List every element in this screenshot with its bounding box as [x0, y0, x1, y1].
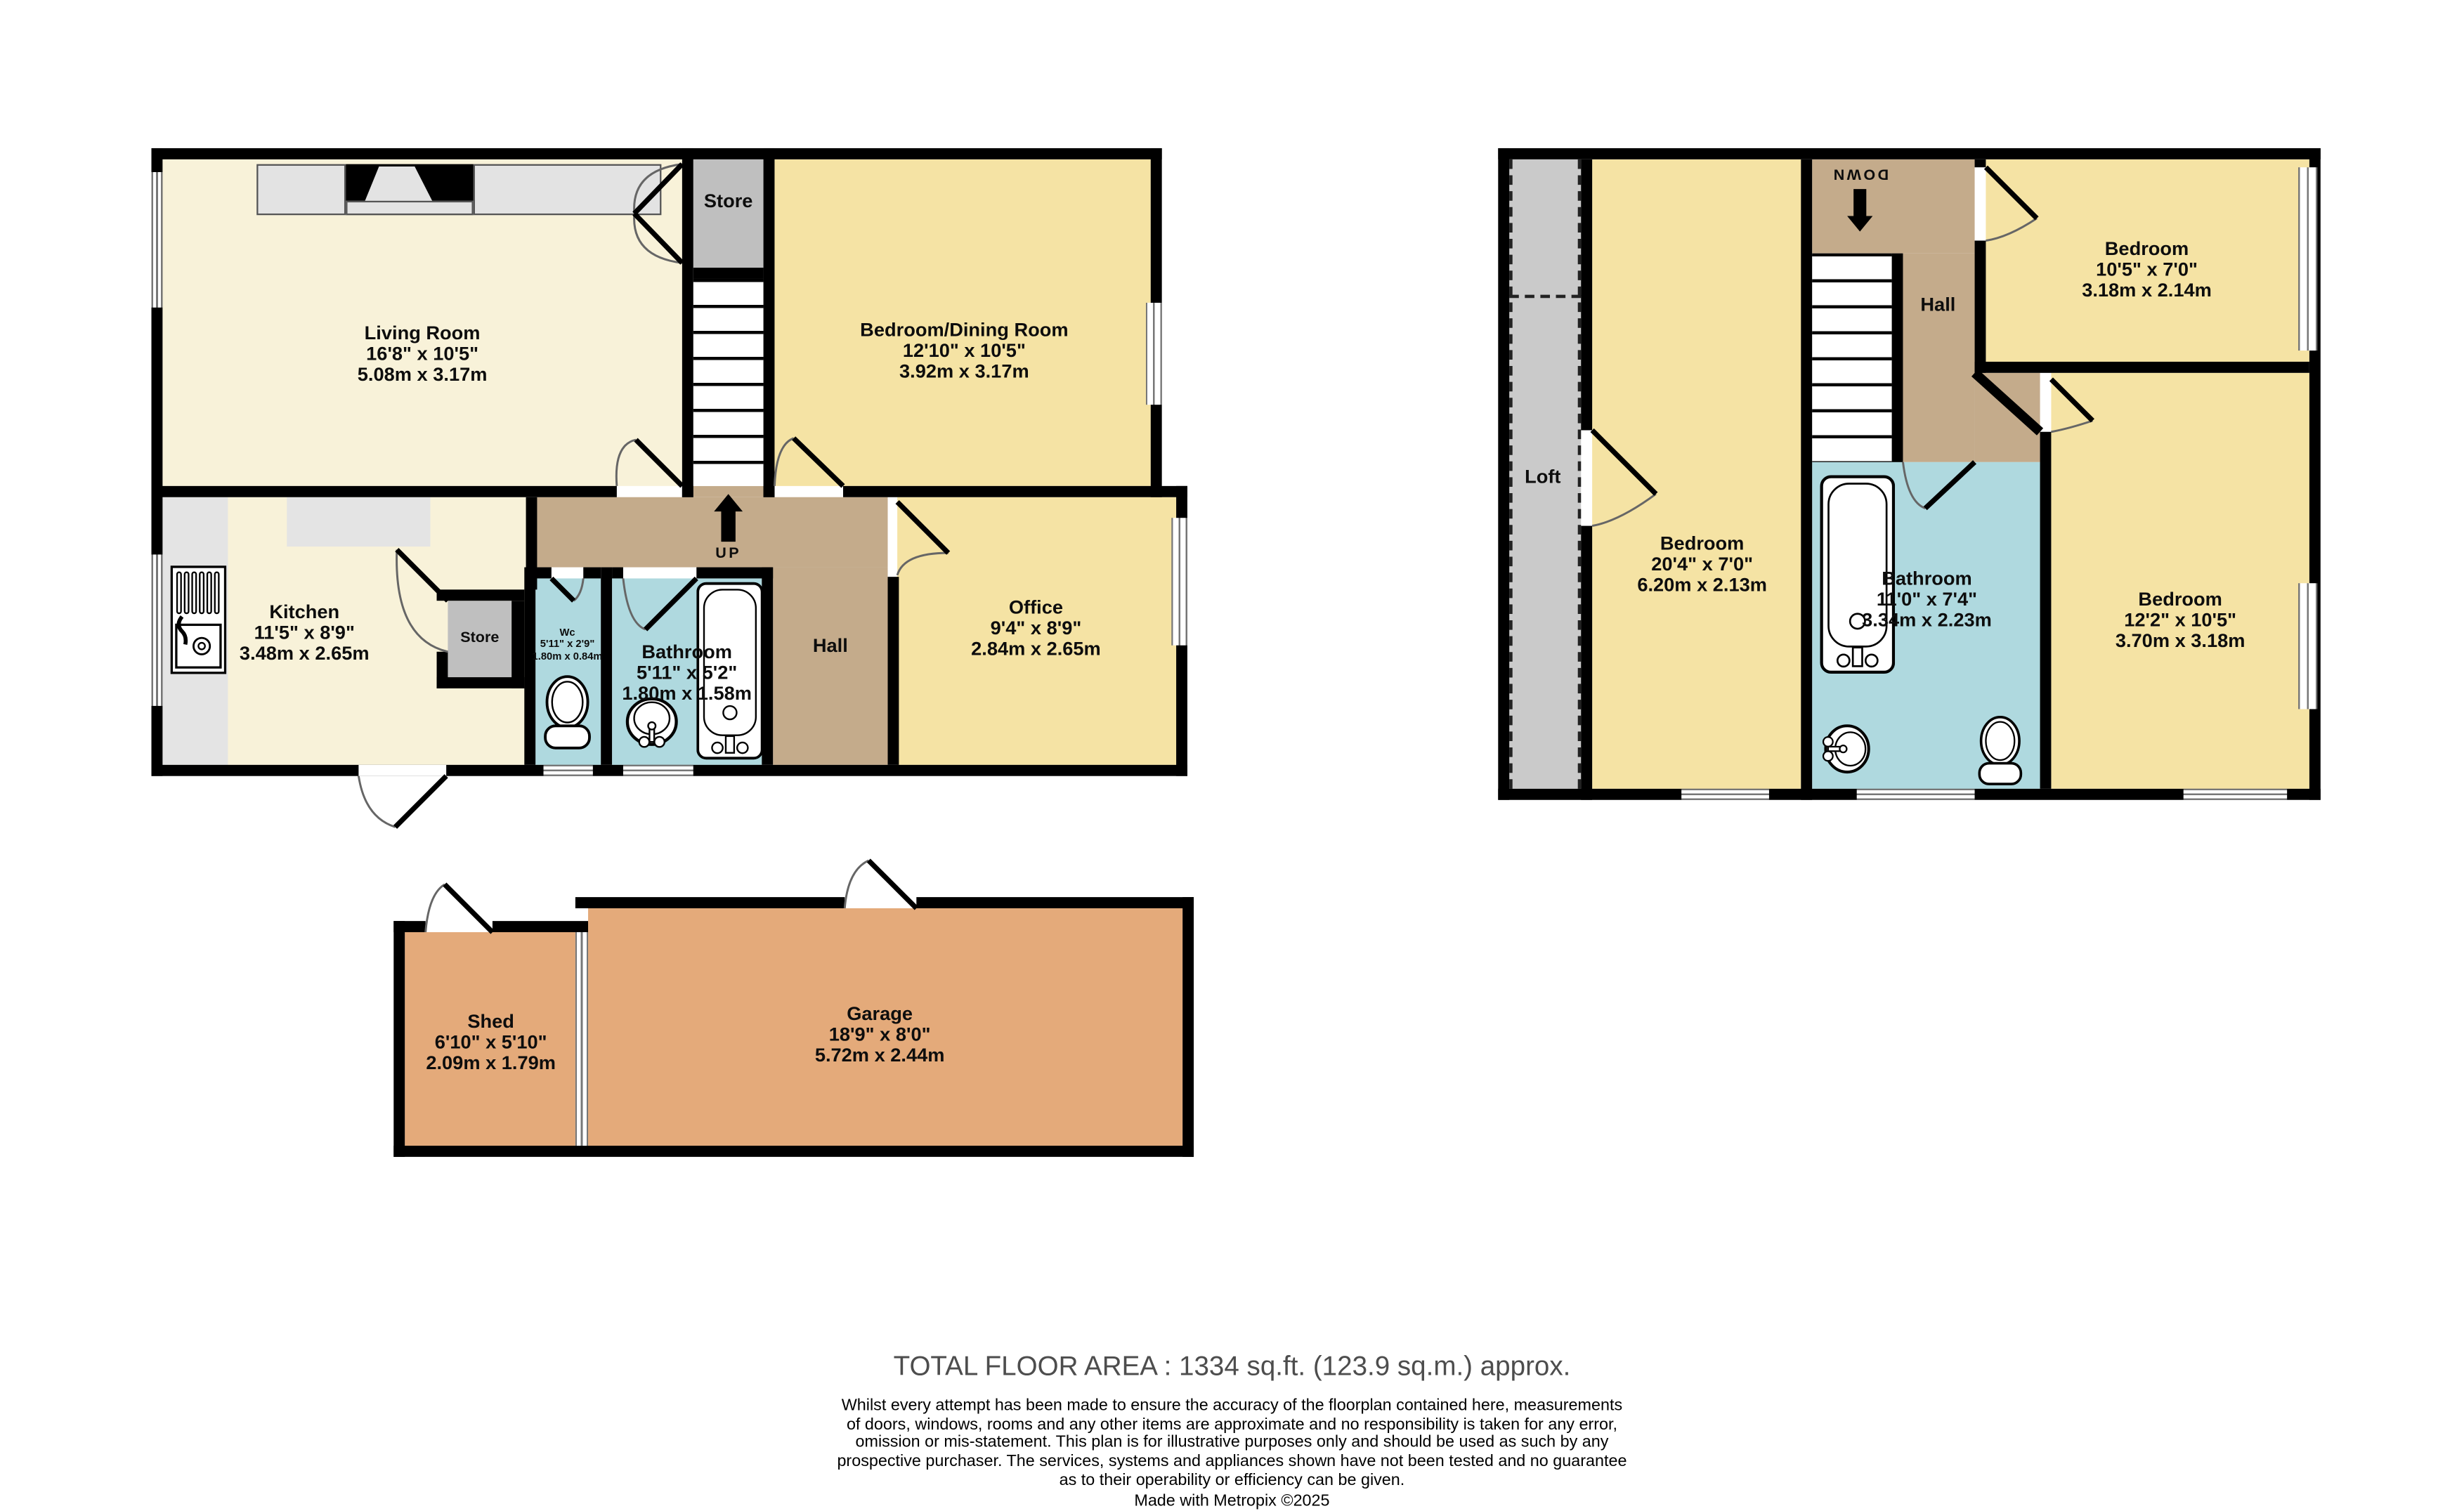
kitchen-label: Kitchen 11'5" x 8'9" 3.48m x 2.65m [240, 602, 370, 665]
wall [612, 568, 623, 579]
wall [437, 589, 525, 601]
chimney-hearth [346, 201, 473, 215]
room-dims-imperial: 12'10" x 10'5" [860, 341, 1068, 362]
bedroom-bottom-right-label: Bedroom 12'2" x 10'5" 3.70m x 3.18m [2116, 589, 2245, 653]
wall [693, 268, 764, 279]
room-dims-metric: 1.80m x 0.84m [533, 651, 603, 663]
room-name: Bedroom [1637, 534, 1767, 555]
wall [393, 1146, 1194, 1157]
fireplace-sill-left [256, 164, 346, 216]
wall [762, 568, 773, 765]
room-name: Bedroom [2082, 239, 2212, 260]
wall [601, 568, 612, 765]
room-name: Bedroom [2116, 589, 2245, 610]
room-name: Garage [815, 1004, 945, 1025]
wall [151, 486, 616, 497]
wall [393, 921, 405, 1157]
bathroom-label: Bathroom 5'11" x 5'2" 1.80m x 1.58m [622, 642, 752, 705]
living-room-label: Living Room 16'8" x 10'5" 5.08m x 3.17m [358, 323, 488, 386]
room-dims-metric: 3.48m x 2.65m [240, 644, 370, 665]
room-dims-metric: 3.70m x 3.18m [2116, 632, 2245, 653]
bedroom-top-right-label: Bedroom 10'5" x 7'0" 3.18m x 2.14m [2082, 239, 2212, 302]
window [2298, 583, 2317, 709]
wall [843, 486, 1187, 497]
outbuildings-plan: Shed 6'10" x 5'10" 2.09m x 1.79m Garage … [393, 897, 1205, 1168]
wall [511, 601, 524, 688]
wall [2040, 432, 2052, 789]
down-label: DOWN [1831, 164, 1889, 181]
room-dims-imperial: 6'10" x 5'10" [426, 1033, 556, 1054]
window [623, 765, 693, 776]
wall [1975, 241, 1986, 373]
window [1857, 789, 1975, 800]
room-dims-metric: 3.34m x 2.23m [1862, 611, 1992, 632]
office-label: Office 9'4" x 8'9" 2.84m x 2.65m [971, 598, 1101, 661]
bedroom-bottom-right-room [2051, 373, 2309, 789]
wall [696, 568, 773, 579]
room-dims-metric: 5.72m x 2.44m [815, 1046, 945, 1067]
toilet-icon [1976, 712, 2024, 789]
room-dims-metric: 3.92m x 3.17m [860, 362, 1068, 384]
disclaimer-line: as to their operability or efficiency ca… [0, 1472, 2464, 1491]
hall-first-label: Hall [1920, 295, 1955, 316]
disclaimer-line: omission or mis-statement. This plan is … [0, 1434, 2464, 1453]
room-dims-imperial: 5'11" x 2'9" [533, 640, 603, 652]
metropix-credit: Made with Metropix ©2025 [0, 1492, 2464, 1511]
up-label: UP [715, 547, 741, 563]
wall [916, 897, 1194, 908]
total-floor-area: TOTAL FLOOR AREA : 1334 sq.ft. (123.9 sq… [0, 1352, 2464, 1383]
loft-label: Loft [1525, 467, 1560, 488]
door-arc [845, 861, 868, 908]
wall [764, 148, 775, 497]
bedroom-dining-label: Bedroom/Dining Room 12'10" x 10'5" 3.92m… [860, 320, 1068, 384]
wall [437, 652, 448, 688]
loft-dash-line [1509, 295, 1581, 299]
room-dims-metric: 2.84m x 2.65m [971, 640, 1101, 661]
window [2184, 789, 2287, 800]
room-name: Office [971, 598, 1101, 619]
room-dims-imperial: 10'5" x 7'0" [2082, 260, 2212, 281]
room-dims-imperial: 11'5" x 8'9" [240, 623, 370, 644]
room-dims-metric: 3.18m x 2.14m [2082, 281, 2212, 302]
door-arc [426, 884, 445, 932]
wall [887, 577, 899, 765]
window [1681, 789, 1769, 800]
room-dims-metric: 6.20m x 2.13m [1637, 576, 1767, 597]
floorplan-canvas: Living Room 16'8" x 10'5" 5.08m x 3.17m … [0, 0, 2464, 1500]
up-arrow-icon [714, 494, 743, 542]
wall [1182, 897, 1194, 1157]
wall [583, 568, 601, 579]
room-dims-imperial: 18'9" x 8'0" [815, 1025, 945, 1046]
fireplace-sill-right [474, 164, 662, 216]
window [1171, 518, 1187, 645]
wall [524, 568, 535, 765]
shed-label: Shed 6'10" x 5'10" 2.09m x 1.79m [426, 1012, 556, 1075]
sink-icon [1817, 720, 1871, 778]
wall [1892, 254, 1903, 462]
wc-label: Wc 5'11" x 2'9" 1.80m x 0.84m [533, 628, 603, 663]
garage-label: Garage 18'9" x 8'0" 5.72m x 2.44m [815, 1004, 945, 1067]
bedroom-left-room [1592, 159, 1801, 789]
door-leaf [396, 776, 447, 828]
wall [535, 568, 552, 579]
kitchen-counter-top [287, 497, 430, 547]
bedroom-left-label: Bedroom 20'4" x 7'0" 6.20m x 2.13m [1637, 534, 1767, 597]
room-dims-imperial: 16'8" x 10'5" [358, 344, 488, 365]
footer: TOTAL FLOOR AREA : 1334 sq.ft. (123.9 sq… [0, 1352, 2464, 1511]
room-dims-imperial: 5'11" x 5'2" [622, 663, 752, 684]
disclaimer-line: Whilst every attempt has been made to en… [0, 1397, 2464, 1416]
room-dims-metric: 5.08m x 3.17m [358, 365, 488, 386]
window [151, 554, 162, 705]
wall [1975, 159, 1986, 167]
room-name: Bedroom/Dining Room [860, 320, 1068, 341]
first-floor-plan: DOWN Loft Bedroom 20'4" x 7'0" 6.20m x 2… [1498, 148, 2351, 811]
room-dims-imperial: 12'2" x 10'5" [2116, 610, 2245, 632]
window [151, 172, 162, 308]
toilet-icon [542, 671, 593, 754]
hall-corridor [773, 568, 887, 765]
wall [575, 897, 845, 908]
room-name: Bathroom [1862, 569, 1992, 590]
stairs-up [693, 279, 764, 486]
disclaimer-line: prospective purchaser. The services, sys… [0, 1453, 2464, 1472]
room-dims-imperial: 9'4" x 8'9" [971, 619, 1101, 640]
room-dims-imperial: 11'0" x 7'4" [1862, 590, 1992, 611]
door-leaf [445, 884, 493, 932]
wall [1498, 148, 2320, 159]
room-name: Living Room [358, 323, 488, 344]
window [544, 765, 593, 776]
hall-room [537, 497, 887, 568]
wall [1975, 362, 2309, 373]
window [2298, 167, 2317, 351]
door-arc [358, 776, 395, 828]
wall [1801, 159, 1812, 800]
wall [1581, 526, 1592, 800]
window [1146, 303, 1162, 405]
room-dims-imperial: 20'4" x 7'0" [1637, 555, 1767, 576]
door-opening [358, 765, 446, 776]
room-name: Kitchen [240, 602, 370, 623]
landing-diagonal-zone [1975, 373, 2040, 462]
wall [1581, 159, 1592, 431]
disclaimer-line: of doors, windows, rooms and any other i… [0, 1416, 2464, 1435]
door-leaf [868, 861, 916, 908]
room-name: Shed [426, 1012, 556, 1033]
landing-corridor [1903, 254, 1974, 462]
room-dims-metric: 2.09m x 1.79m [426, 1054, 556, 1075]
room-name: Bathroom [622, 642, 752, 663]
stairs-down [1812, 254, 1891, 462]
store-top-label: Store [704, 191, 753, 212]
window [575, 932, 588, 1146]
wall [493, 921, 588, 932]
wall [1498, 148, 1509, 800]
hall-label: Hall [813, 636, 848, 657]
ground-floor-plan: Living Room 16'8" x 10'5" 5.08m x 3.17m … [151, 148, 1204, 865]
kitchen-sink-icon [171, 565, 226, 674]
down-arrow-icon [1847, 186, 1872, 234]
room-name: Wc [533, 628, 603, 640]
room-dims-metric: 1.80m x 1.58m [622, 684, 752, 705]
store-small-label: Store [460, 631, 499, 648]
wall [151, 148, 1161, 159]
bathroom-first-label: Bathroom 11'0" x 7'4" 3.34m x 2.23m [1862, 569, 1992, 632]
store-top-room [693, 159, 764, 268]
wall [682, 148, 693, 497]
